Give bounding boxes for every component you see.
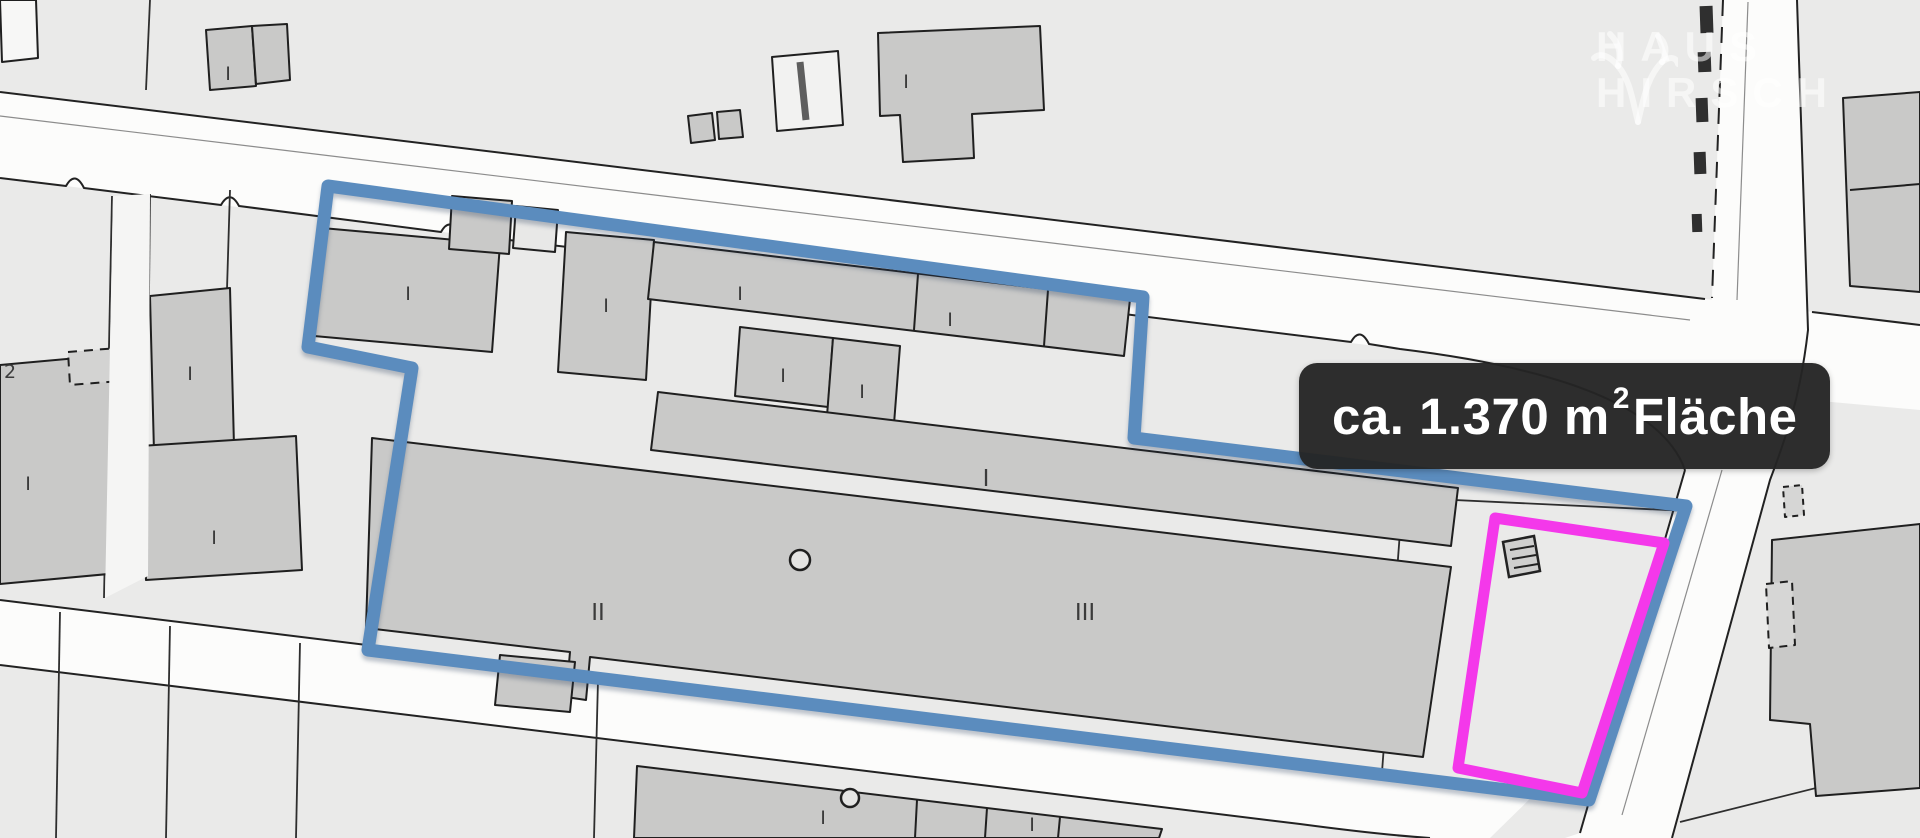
storey-mark: I: [603, 295, 609, 317]
building: [252, 24, 290, 84]
storey-mark: I: [1029, 814, 1035, 836]
site-plan-screenshot: I I I I I I I I I I I I II III I I 2: [0, 0, 1920, 838]
area-label-superscript: 2: [1613, 382, 1630, 416]
map-circle-symbol: [790, 550, 810, 570]
building: [0, 0, 38, 62]
building: [1783, 485, 1804, 517]
building: [1766, 581, 1795, 648]
area-label-suffix: Fläche: [1633, 387, 1798, 446]
storey-mark: I: [903, 71, 909, 93]
storey-mark: I: [187, 363, 193, 385]
storey-mark: I: [983, 466, 990, 492]
storey-mark: I: [820, 807, 826, 829]
building: [1770, 524, 1920, 796]
building: [878, 26, 1044, 162]
storey-mark: I: [947, 309, 953, 331]
area-label: ca. 1.370 m2 Fläche: [1299, 363, 1830, 469]
storey-mark: III: [1075, 600, 1095, 626]
building: [1843, 92, 1920, 292]
map-circle-symbol: [841, 789, 859, 807]
building: [140, 436, 302, 580]
storey-mark: I: [405, 283, 411, 305]
building: [717, 110, 743, 139]
storey-mark: I: [859, 381, 865, 403]
storey-mark: I: [225, 63, 231, 85]
building: [688, 113, 715, 143]
area-label-prefix: ca. 1.370 m: [1332, 387, 1610, 446]
storey-mark: I: [25, 473, 31, 495]
storey-mark: II: [591, 600, 605, 626]
building: [206, 26, 256, 90]
storey-mark: I: [737, 283, 743, 305]
house-number: 2: [4, 361, 16, 383]
storey-mark: I: [780, 365, 786, 387]
storey-mark: I: [211, 527, 217, 549]
shed-icon: [1503, 536, 1540, 577]
